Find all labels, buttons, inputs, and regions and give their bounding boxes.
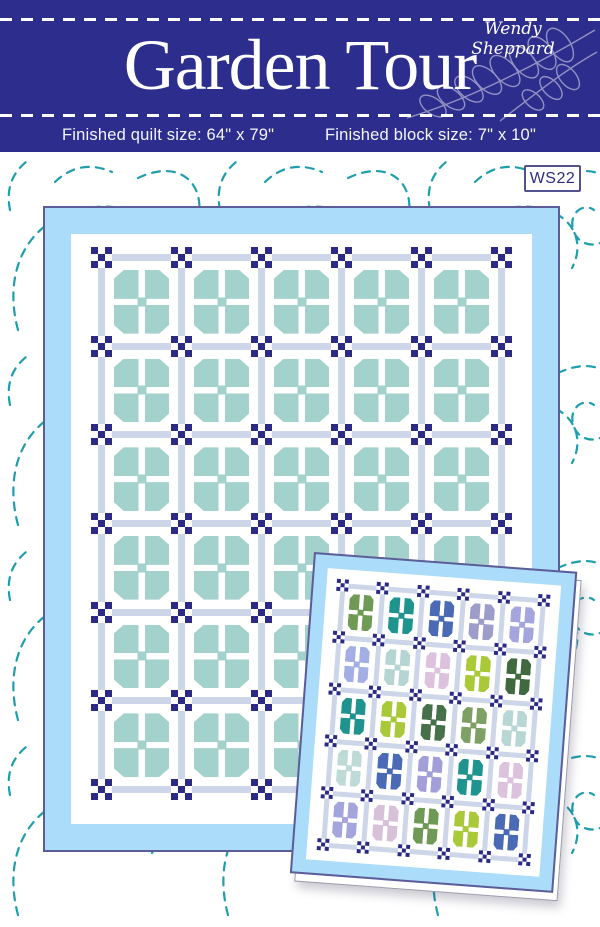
block-quadrant bbox=[145, 659, 170, 688]
block-center-square bbox=[137, 386, 146, 395]
block-quadrant bbox=[225, 482, 250, 511]
sashing-horizontal bbox=[432, 513, 491, 534]
block-quadrant bbox=[347, 614, 358, 631]
cornerstone-ninepatch bbox=[491, 247, 512, 268]
block-quadrant bbox=[434, 305, 459, 334]
block-quadrant bbox=[225, 447, 250, 476]
block-quadrant bbox=[336, 769, 347, 786]
cornerstone-ninepatch bbox=[438, 847, 451, 860]
block-quadrant bbox=[354, 270, 379, 299]
block-quadrant bbox=[422, 704, 433, 721]
sashing-horizontal bbox=[409, 845, 438, 859]
block-quadrant bbox=[386, 825, 397, 842]
block-quadrant bbox=[194, 270, 219, 299]
quilt-block bbox=[272, 445, 331, 513]
quilt-block bbox=[341, 644, 372, 686]
block-quadrant bbox=[425, 652, 436, 669]
block-quadrant bbox=[145, 393, 170, 422]
block-quadrant bbox=[145, 571, 170, 600]
block-quadrant bbox=[332, 821, 343, 838]
sashing-vertical bbox=[411, 445, 432, 513]
block-quadrant bbox=[114, 447, 139, 476]
sashing-vertical bbox=[251, 623, 272, 691]
quilt-block bbox=[192, 711, 251, 779]
sashing-vertical bbox=[251, 711, 272, 779]
block-quadrant bbox=[145, 713, 170, 742]
block-center-square bbox=[382, 820, 388, 826]
block-quadrant bbox=[493, 833, 504, 850]
sashing-vertical bbox=[251, 268, 272, 336]
block-center-square bbox=[386, 768, 392, 774]
block-quadrant bbox=[428, 620, 439, 637]
block-quadrant bbox=[225, 748, 250, 777]
block-center-square bbox=[467, 774, 473, 780]
cornerstone-ninepatch bbox=[445, 743, 458, 756]
block-quadrant bbox=[454, 810, 465, 827]
block-center-square bbox=[342, 817, 348, 823]
block-quadrant bbox=[502, 710, 513, 727]
block-center-square bbox=[463, 826, 469, 832]
block-quadrant bbox=[194, 659, 219, 688]
cornerstone-ninepatch bbox=[251, 779, 272, 800]
quilt-block bbox=[192, 357, 251, 425]
cornerstone-ninepatch bbox=[518, 853, 531, 866]
block-quadrant bbox=[345, 646, 356, 663]
block-quadrant bbox=[274, 305, 299, 334]
cornerstone-ninepatch bbox=[373, 634, 386, 647]
sashing-vertical bbox=[91, 268, 112, 336]
sashing-horizontal bbox=[112, 424, 171, 445]
cornerstone-ninepatch bbox=[171, 424, 192, 445]
cornerstone-ninepatch bbox=[538, 594, 551, 607]
block-quadrant bbox=[501, 730, 512, 747]
quilt-block bbox=[330, 799, 361, 841]
block-center-square bbox=[434, 667, 440, 673]
cornerstone-ninepatch bbox=[91, 336, 112, 357]
block-quadrant bbox=[376, 772, 387, 789]
block-quadrant bbox=[354, 719, 365, 736]
quilt-block bbox=[192, 445, 251, 513]
block-quadrant bbox=[465, 359, 490, 388]
cornerstone-ninepatch bbox=[332, 631, 345, 644]
sashing-vertical bbox=[171, 268, 192, 336]
block-quadrant bbox=[145, 482, 170, 511]
block-quadrant bbox=[385, 649, 396, 666]
cornerstone-ninepatch bbox=[397, 844, 410, 857]
block-quadrant bbox=[394, 722, 405, 739]
block-quadrant bbox=[274, 447, 299, 476]
block-quadrant bbox=[274, 536, 299, 565]
block-center-square bbox=[297, 297, 306, 306]
sashing-horizontal bbox=[112, 690, 171, 711]
block-quadrant bbox=[380, 720, 391, 737]
cornerstone-ninepatch bbox=[324, 734, 337, 747]
cornerstone-ninepatch bbox=[251, 424, 272, 445]
block-quadrant bbox=[350, 770, 361, 787]
block-quadrant bbox=[354, 393, 379, 422]
quilt-block bbox=[385, 595, 416, 637]
block-center-square bbox=[503, 829, 509, 835]
block-quadrant bbox=[305, 305, 330, 334]
cornerstone-ninepatch bbox=[171, 336, 192, 357]
sashing-horizontal bbox=[449, 848, 478, 862]
block-quadrant bbox=[194, 571, 219, 600]
cornerstone-ninepatch bbox=[401, 792, 414, 805]
designer-name: Wendy Sheppard bbox=[448, 20, 578, 59]
block-center-square bbox=[377, 297, 386, 306]
block-center-square bbox=[137, 475, 146, 484]
quilt-block bbox=[112, 357, 171, 425]
block-center-square bbox=[217, 563, 226, 572]
block-quadrant bbox=[274, 270, 299, 299]
quilt-block bbox=[112, 623, 171, 691]
block-center-square bbox=[137, 652, 146, 661]
cornerstone-ninepatch bbox=[491, 424, 512, 445]
block-center-square bbox=[398, 612, 404, 618]
cornerstone-ninepatch bbox=[478, 850, 491, 863]
cornerstone-ninepatch bbox=[251, 247, 272, 268]
quilt-block bbox=[112, 534, 171, 602]
block-quadrant bbox=[392, 753, 403, 770]
cornerstone-ninepatch bbox=[411, 513, 432, 534]
sashing-vertical bbox=[91, 445, 112, 513]
block-quadrant bbox=[416, 775, 427, 792]
cornerstone-ninepatch bbox=[453, 640, 466, 653]
quilt-block bbox=[272, 268, 331, 336]
cornerstone-ninepatch bbox=[413, 637, 426, 650]
cornerstone-ninepatch bbox=[91, 424, 112, 445]
quilt-block bbox=[418, 701, 449, 743]
cornerstone-ninepatch bbox=[357, 841, 370, 854]
block-quadrant bbox=[465, 305, 490, 334]
block-quadrant bbox=[274, 571, 299, 600]
small-quilt-illustration bbox=[290, 552, 577, 893]
block-center-square bbox=[217, 297, 226, 306]
cornerstone-ninepatch bbox=[251, 602, 272, 623]
sashing-horizontal bbox=[272, 247, 331, 268]
block-quadrant bbox=[465, 447, 490, 476]
block-center-square bbox=[137, 741, 146, 750]
block-center-square bbox=[350, 713, 356, 719]
quilt-block bbox=[370, 802, 401, 844]
sashing-vertical bbox=[91, 357, 112, 425]
sashing-horizontal bbox=[192, 779, 251, 800]
block-quadrant bbox=[305, 270, 330, 299]
cornerstone-ninepatch bbox=[251, 513, 272, 534]
block-quadrant bbox=[520, 659, 531, 676]
block-quadrant bbox=[341, 698, 352, 715]
block-quadrant bbox=[462, 707, 473, 724]
block-quadrant bbox=[354, 447, 379, 476]
quilt-block bbox=[352, 268, 411, 336]
sashing-vertical bbox=[171, 534, 192, 602]
quilt-block bbox=[466, 601, 497, 643]
block-quadrant bbox=[359, 647, 370, 664]
block-quadrant bbox=[114, 625, 139, 654]
block-quadrant bbox=[354, 482, 379, 511]
block-center-square bbox=[297, 652, 306, 661]
quilt-block bbox=[378, 698, 409, 740]
sashing-horizontal bbox=[432, 247, 491, 268]
block-quadrant bbox=[114, 659, 139, 688]
quilt-block bbox=[422, 650, 453, 692]
small-quilt-grid bbox=[317, 579, 551, 866]
block-quadrant bbox=[351, 750, 362, 767]
cornerstone-ninepatch bbox=[405, 740, 418, 753]
quilt-block bbox=[345, 592, 376, 634]
pattern-code-badge: WS22 bbox=[524, 165, 581, 192]
small-quilt bbox=[290, 552, 577, 893]
quilt-block bbox=[112, 268, 171, 336]
cornerstone-ninepatch bbox=[91, 602, 112, 623]
block-center-square bbox=[297, 563, 306, 572]
sashing-horizontal bbox=[432, 336, 491, 357]
block-quadrant bbox=[274, 713, 299, 742]
sashing-horizontal bbox=[369, 842, 398, 856]
block-quadrant bbox=[339, 717, 350, 734]
block-quadrant bbox=[385, 359, 410, 388]
block-quadrant bbox=[494, 813, 505, 830]
quilt-block bbox=[337, 695, 368, 737]
block-quadrant bbox=[438, 673, 449, 690]
quilt-block bbox=[374, 750, 405, 792]
block-quadrant bbox=[385, 305, 410, 334]
block-quadrant bbox=[395, 702, 406, 719]
block-quadrant bbox=[512, 763, 523, 780]
block-quadrant bbox=[506, 658, 517, 675]
block-quadrant bbox=[373, 804, 384, 821]
cornerstone-ninepatch bbox=[361, 789, 374, 802]
block-quadrant bbox=[194, 447, 219, 476]
block-quadrant bbox=[114, 713, 139, 742]
block-center-square bbox=[394, 664, 400, 670]
cornerstone-ninepatch bbox=[331, 247, 352, 268]
cornerstone-ninepatch bbox=[409, 689, 422, 702]
cornerstone-ninepatch bbox=[417, 585, 430, 598]
block-center-square bbox=[478, 619, 484, 625]
block-quadrant bbox=[377, 752, 388, 769]
block-center-square bbox=[438, 616, 444, 622]
block-quadrant bbox=[194, 305, 219, 334]
block-quadrant bbox=[145, 270, 170, 299]
sashing-horizontal bbox=[192, 336, 251, 357]
block-quadrant bbox=[343, 666, 354, 683]
block-center-square bbox=[426, 771, 432, 777]
cornerstone-ninepatch bbox=[171, 690, 192, 711]
sashing-vertical bbox=[171, 711, 192, 779]
cornerstone-ninepatch bbox=[91, 690, 112, 711]
block-quadrant bbox=[114, 270, 139, 299]
block-quadrant bbox=[464, 675, 475, 692]
block-quadrant bbox=[114, 571, 139, 600]
cornerstone-ninepatch bbox=[331, 336, 352, 357]
block-quadrant bbox=[474, 728, 485, 745]
block-quadrant bbox=[436, 705, 447, 722]
block-center-square bbox=[507, 777, 513, 783]
block-quadrant bbox=[381, 701, 392, 718]
sashing-horizontal bbox=[329, 839, 358, 853]
quilt-block bbox=[352, 445, 411, 513]
block-quadrant bbox=[468, 623, 479, 640]
quilt-block bbox=[192, 623, 251, 691]
block-quadrant bbox=[418, 755, 429, 772]
sashing-vertical bbox=[251, 534, 272, 602]
block-center-square bbox=[457, 475, 466, 484]
block-quadrant bbox=[225, 305, 250, 334]
block-quadrant bbox=[225, 713, 250, 742]
sashing-horizontal bbox=[272, 424, 331, 445]
block-quadrant bbox=[274, 393, 299, 422]
block-quadrant bbox=[385, 393, 410, 422]
block-center-square bbox=[377, 475, 386, 484]
quilt-block bbox=[498, 707, 529, 749]
sashing-horizontal bbox=[192, 513, 251, 534]
block-quadrant bbox=[114, 393, 139, 422]
block-quadrant bbox=[458, 758, 469, 775]
block-center-square bbox=[390, 716, 396, 722]
quilt-block bbox=[462, 653, 493, 695]
cornerstone-ninepatch bbox=[369, 686, 382, 699]
quilt-block bbox=[454, 756, 485, 798]
block-quadrant bbox=[480, 656, 491, 673]
sashing-vertical bbox=[91, 623, 112, 691]
quilt-block bbox=[426, 598, 457, 640]
sashing-vertical bbox=[91, 534, 112, 602]
block-center-square bbox=[137, 563, 146, 572]
block-center-square bbox=[346, 765, 352, 771]
pattern-code-label: WS22 bbox=[530, 170, 576, 188]
sashing-horizontal bbox=[192, 690, 251, 711]
block-quadrant bbox=[194, 625, 219, 654]
cornerstone-ninepatch bbox=[331, 424, 352, 445]
block-quadrant bbox=[274, 482, 299, 511]
sashing-vertical bbox=[411, 357, 432, 425]
sashing-vertical bbox=[251, 357, 272, 425]
sashing-horizontal bbox=[432, 424, 491, 445]
block-quadrant bbox=[470, 603, 481, 620]
block-quadrant bbox=[194, 536, 219, 565]
sashing-horizontal bbox=[192, 424, 251, 445]
block-quadrant bbox=[456, 778, 467, 795]
block-quadrant bbox=[194, 359, 219, 388]
block-quadrant bbox=[390, 773, 401, 790]
cornerstone-ninepatch bbox=[497, 591, 510, 604]
sashing-horizontal bbox=[352, 336, 411, 357]
block-quadrant bbox=[516, 711, 527, 728]
block-quadrant bbox=[145, 447, 170, 476]
quilt-block bbox=[450, 808, 481, 850]
block-quadrant bbox=[225, 625, 250, 654]
cornerstone-ninepatch bbox=[530, 698, 543, 711]
quilt-block bbox=[382, 647, 413, 689]
block-center-square bbox=[511, 725, 517, 731]
block-quadrant bbox=[403, 598, 414, 615]
block-center-square bbox=[297, 475, 306, 484]
cornerstone-ninepatch bbox=[171, 602, 192, 623]
sashing-vertical bbox=[491, 445, 512, 513]
quilt-block bbox=[432, 268, 491, 336]
block-quadrant bbox=[468, 811, 479, 828]
sashing-horizontal bbox=[112, 513, 171, 534]
sashing-vertical bbox=[251, 445, 272, 513]
block-quadrant bbox=[305, 482, 330, 511]
block-quadrant bbox=[225, 659, 250, 688]
cornerstone-ninepatch bbox=[328, 683, 341, 696]
block-quadrant bbox=[482, 624, 493, 641]
block-quadrant bbox=[467, 831, 478, 848]
sashing-horizontal bbox=[192, 247, 251, 268]
block-quadrant bbox=[498, 761, 509, 778]
block-quadrant bbox=[145, 359, 170, 388]
cornerstone-ninepatch bbox=[331, 513, 352, 534]
block-quadrant bbox=[399, 650, 410, 667]
block-quadrant bbox=[511, 782, 522, 799]
block-quadrant bbox=[385, 482, 410, 511]
block-quadrant bbox=[355, 699, 366, 716]
block-center-square bbox=[354, 661, 360, 667]
cornerstone-ninepatch bbox=[411, 424, 432, 445]
cornerstone-ninepatch bbox=[376, 582, 389, 595]
sashing-horizontal bbox=[112, 247, 171, 268]
block-center-square bbox=[430, 719, 436, 725]
block-quadrant bbox=[434, 482, 459, 511]
block-quadrant bbox=[426, 828, 437, 845]
block-quadrant bbox=[349, 594, 360, 611]
block-quadrant bbox=[305, 393, 330, 422]
block-quadrant bbox=[412, 827, 423, 844]
quilt-block bbox=[432, 357, 491, 425]
cornerstone-ninepatch bbox=[441, 795, 454, 808]
sashing-horizontal bbox=[352, 424, 411, 445]
block-quadrant bbox=[333, 801, 344, 818]
block-center-square bbox=[377, 386, 386, 395]
block-center-square bbox=[137, 297, 146, 306]
quilt-block bbox=[272, 357, 331, 425]
block-quadrant bbox=[471, 779, 482, 796]
cornerstone-ninepatch bbox=[171, 247, 192, 268]
block-quadrant bbox=[476, 708, 487, 725]
quilt-block bbox=[192, 534, 251, 602]
block-quadrant bbox=[114, 482, 139, 511]
block-quadrant bbox=[363, 595, 374, 612]
block-quadrant bbox=[372, 824, 383, 841]
quilt-block bbox=[352, 357, 411, 425]
sashing-vertical bbox=[491, 357, 512, 425]
sashing-horizontal bbox=[272, 513, 331, 534]
cornerstone-ninepatch bbox=[91, 247, 112, 268]
cornerstone-ninepatch bbox=[251, 336, 272, 357]
block-quadrant bbox=[465, 482, 490, 511]
sashing-vertical bbox=[171, 357, 192, 425]
block-center-square bbox=[457, 297, 466, 306]
block-center-square bbox=[217, 652, 226, 661]
block-center-square bbox=[519, 622, 525, 628]
block-quadrant bbox=[430, 776, 441, 793]
block-quadrant bbox=[145, 305, 170, 334]
sashing-vertical bbox=[171, 623, 192, 691]
block-quadrant bbox=[114, 359, 139, 388]
cornerstone-ninepatch bbox=[522, 801, 535, 814]
block-quadrant bbox=[453, 830, 464, 847]
quilt-block bbox=[112, 711, 171, 779]
quilt-block bbox=[410, 805, 441, 847]
block-quadrant bbox=[388, 617, 399, 634]
cornerstone-ninepatch bbox=[91, 513, 112, 534]
quilt-block bbox=[432, 445, 491, 513]
quilt-block bbox=[112, 445, 171, 513]
block-quadrant bbox=[274, 625, 299, 654]
sashing-horizontal bbox=[272, 336, 331, 357]
